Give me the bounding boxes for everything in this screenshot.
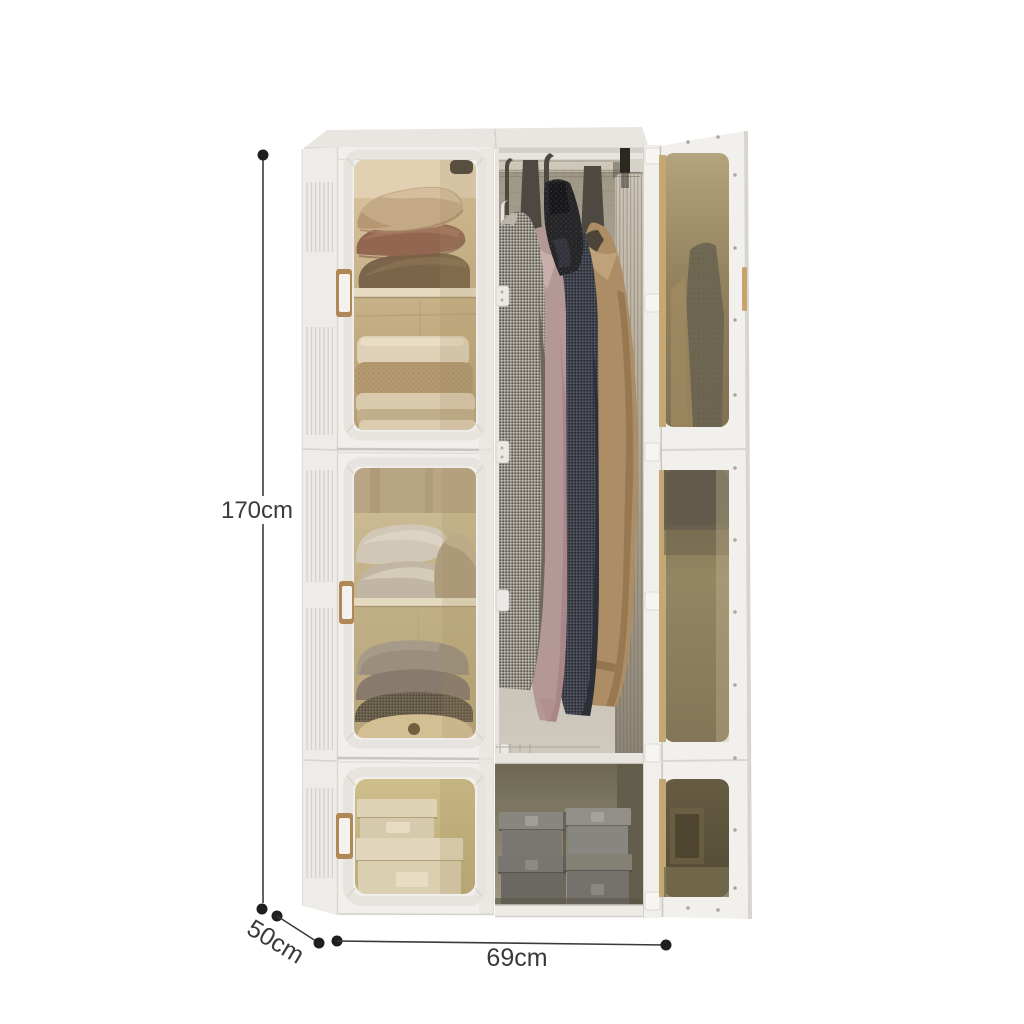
svg-text:69cm: 69cm	[486, 944, 547, 972]
svg-text:170cm: 170cm	[221, 497, 293, 524]
